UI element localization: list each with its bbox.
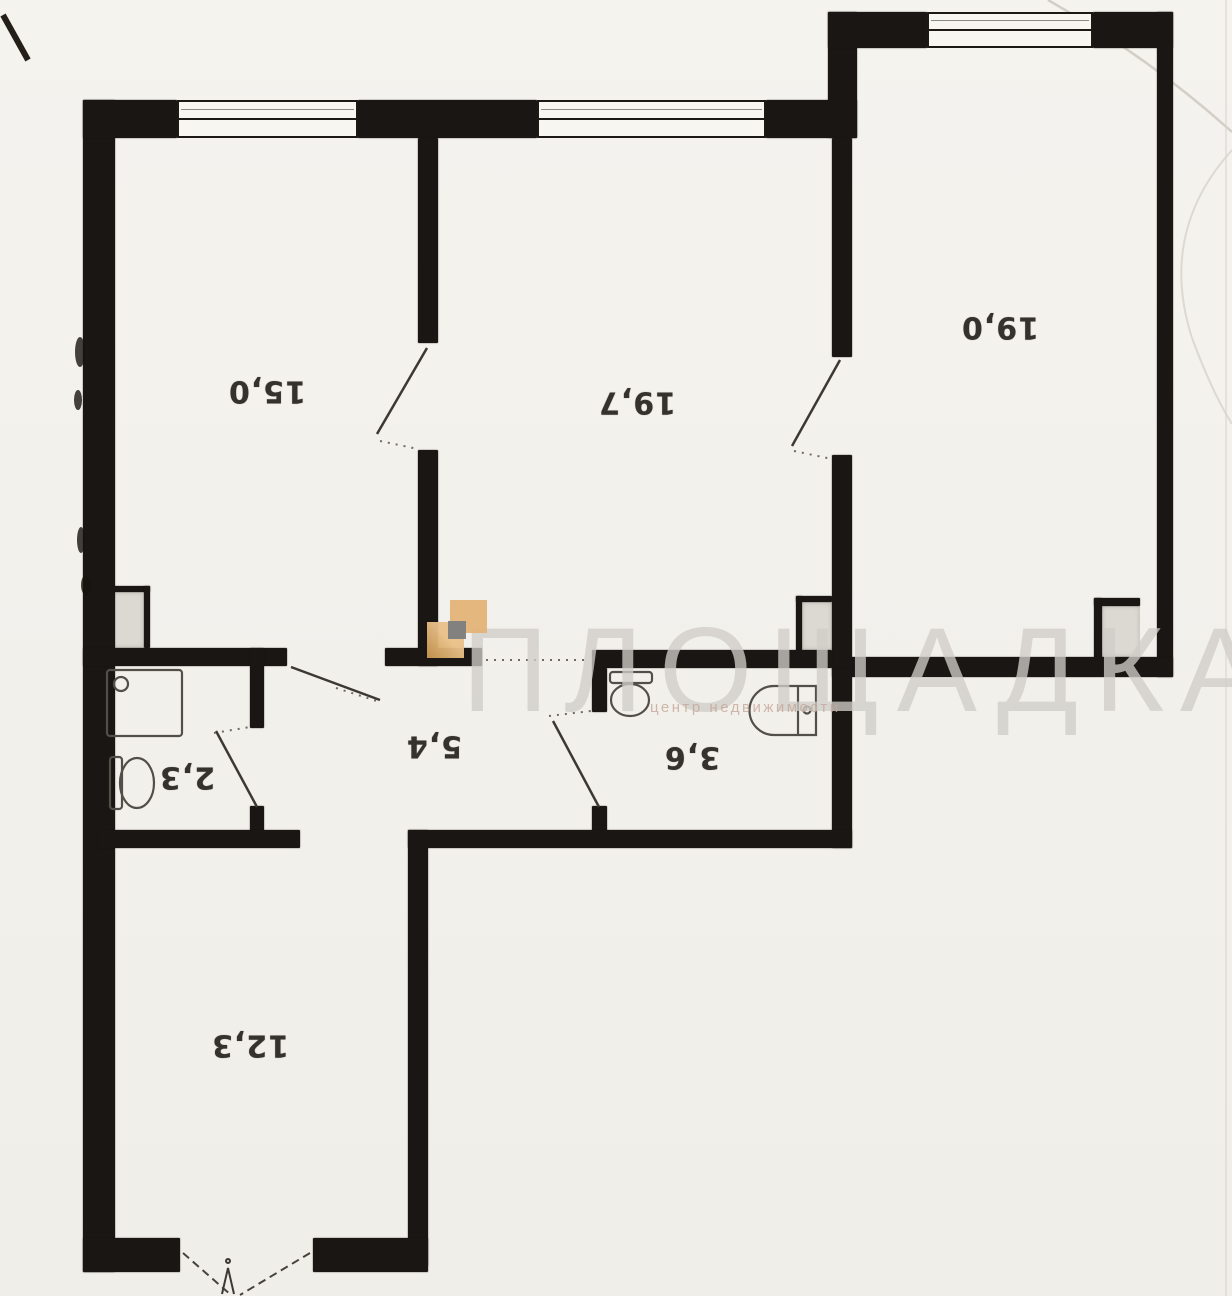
watermark-brand-text: ПЛОЩАДКА bbox=[462, 610, 1232, 730]
window-symbol bbox=[927, 12, 1093, 48]
room-area-label: 15,0 bbox=[228, 374, 306, 409]
entrance-arrow-icon bbox=[222, 1259, 234, 1294]
shower-tray-icon bbox=[107, 670, 182, 736]
door-leaf bbox=[216, 348, 840, 807]
wall bbox=[1157, 12, 1173, 677]
room-area-label: 19,0 bbox=[961, 310, 1039, 345]
room-area-label: 12,3 bbox=[211, 1028, 289, 1063]
toilet-icon bbox=[110, 757, 154, 809]
wall bbox=[592, 806, 607, 832]
wall bbox=[418, 138, 438, 343]
wall bbox=[358, 100, 537, 138]
wall bbox=[144, 586, 150, 648]
wall bbox=[828, 12, 927, 48]
window-symbol bbox=[537, 100, 766, 138]
wall bbox=[83, 1238, 180, 1272]
room-area-label: 3,6 bbox=[664, 740, 720, 775]
wall bbox=[98, 830, 300, 848]
floor-plan-scan: 15,0 19,7 19,0 5,4 3,6 2,3 12,3 ПЛОЩАДКА… bbox=[0, 0, 1232, 1296]
watermark-tagline-text: центр недвижимости bbox=[650, 699, 841, 716]
wall bbox=[83, 100, 177, 138]
corner-mark bbox=[3, 15, 28, 60]
wall bbox=[408, 830, 852, 848]
window-symbol bbox=[177, 100, 358, 138]
room-area-label: 5,4 bbox=[406, 729, 462, 764]
room-area-label: 2,3 bbox=[159, 760, 215, 795]
paper-crease bbox=[1181, 150, 1232, 424]
wall bbox=[832, 138, 852, 357]
wall bbox=[83, 100, 115, 1272]
room-area-label: 19,7 bbox=[598, 385, 676, 420]
wall bbox=[250, 648, 264, 728]
wall bbox=[313, 1238, 428, 1272]
wall bbox=[408, 830, 428, 1266]
watermark-logo-square-accent bbox=[448, 621, 466, 639]
wall bbox=[250, 806, 264, 832]
entrance-door-swing bbox=[183, 1253, 310, 1295]
